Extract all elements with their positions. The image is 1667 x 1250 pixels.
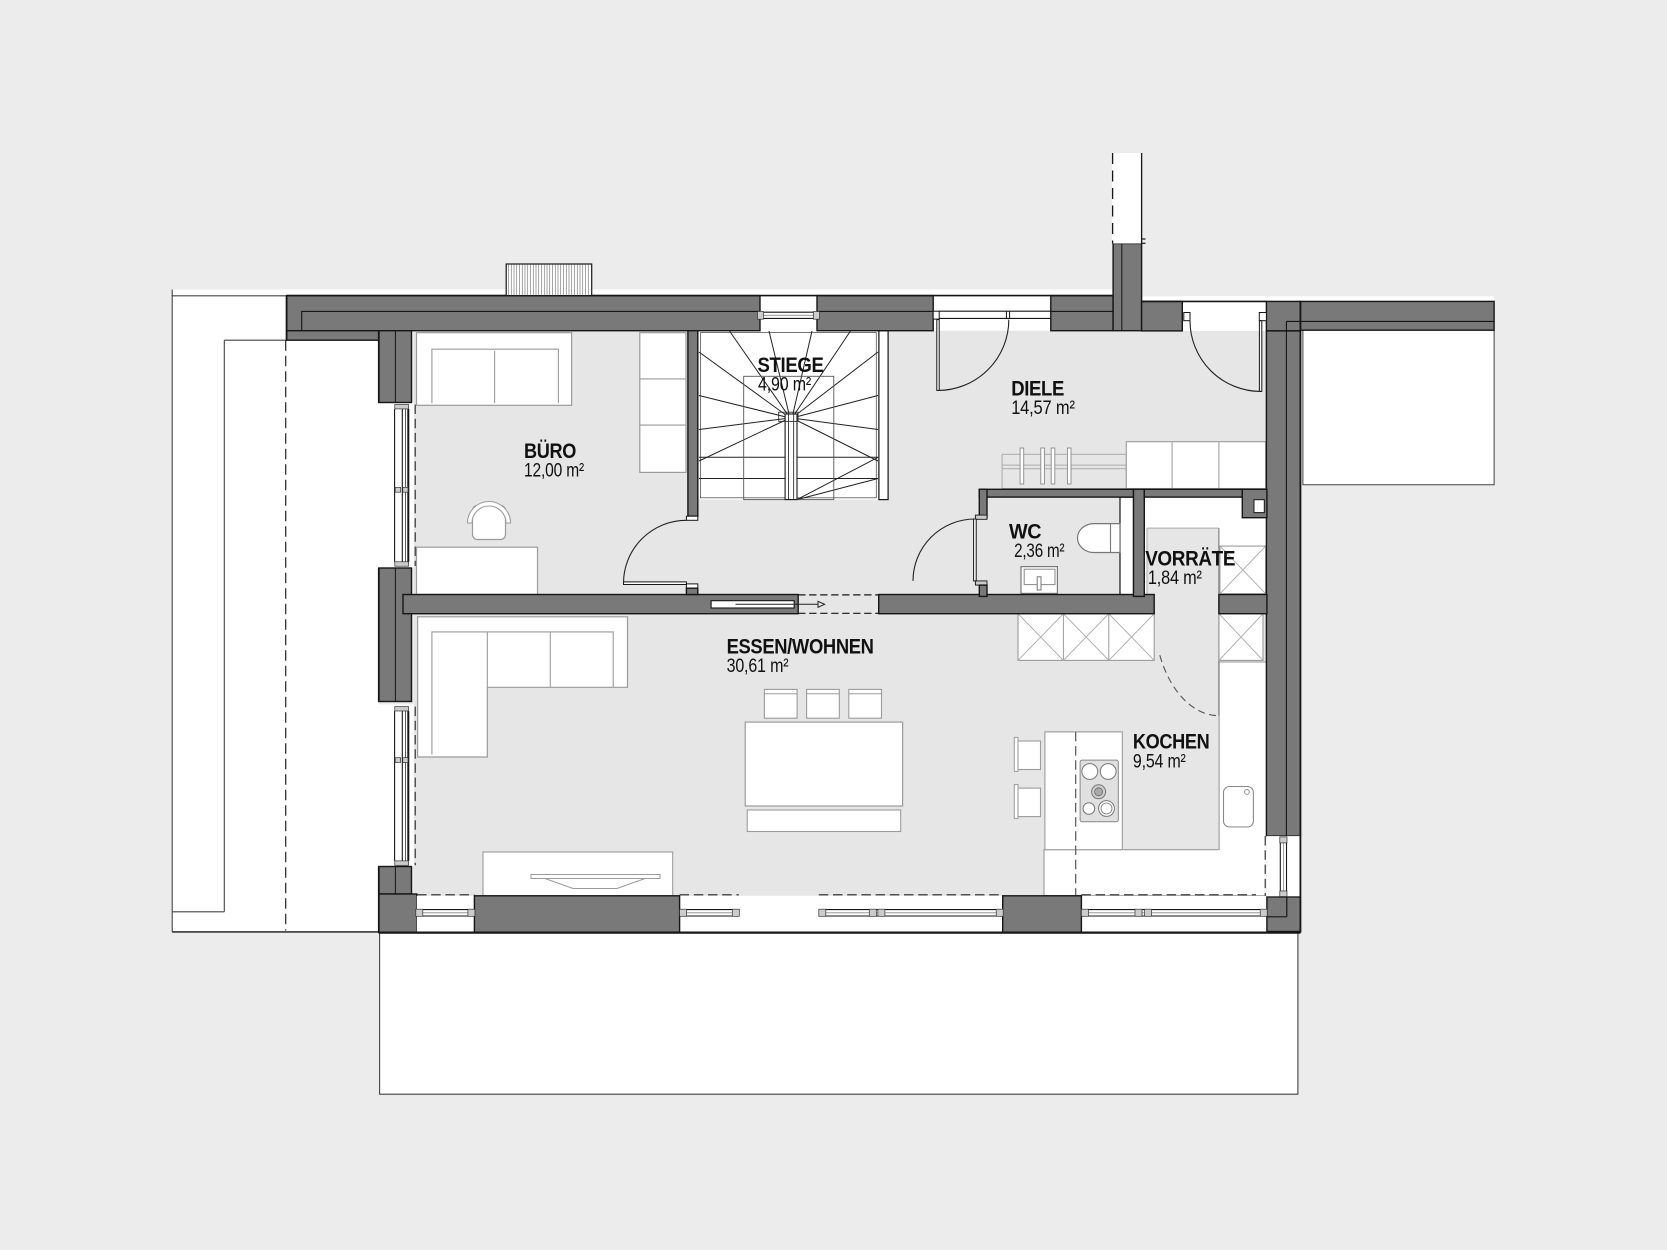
svg-text:WC: WC	[1009, 521, 1041, 544]
svg-text:30,61 m²: 30,61 m²	[727, 656, 789, 677]
svg-text:14,57 m²: 14,57 m²	[1011, 398, 1075, 419]
svg-text:DIELE: DIELE	[1011, 377, 1064, 400]
svg-text:9,54 m²: 9,54 m²	[1133, 751, 1186, 772]
svg-text:BÜRO: BÜRO	[524, 440, 576, 463]
svg-text:KOCHEN: KOCHEN	[1133, 731, 1210, 754]
svg-text:ESSEN/WOHNEN: ESSEN/WOHNEN	[727, 635, 874, 658]
svg-text:STIEGE: STIEGE	[758, 354, 824, 377]
svg-text:12,00 m²: 12,00 m²	[524, 460, 584, 481]
svg-text:1,84 m²: 1,84 m²	[1148, 568, 1202, 589]
svg-text:VORRÄTE: VORRÄTE	[1145, 548, 1235, 571]
svg-text:4,90 m²: 4,90 m²	[758, 374, 811, 395]
svg-text:2,36 m²: 2,36 m²	[1014, 541, 1064, 562]
